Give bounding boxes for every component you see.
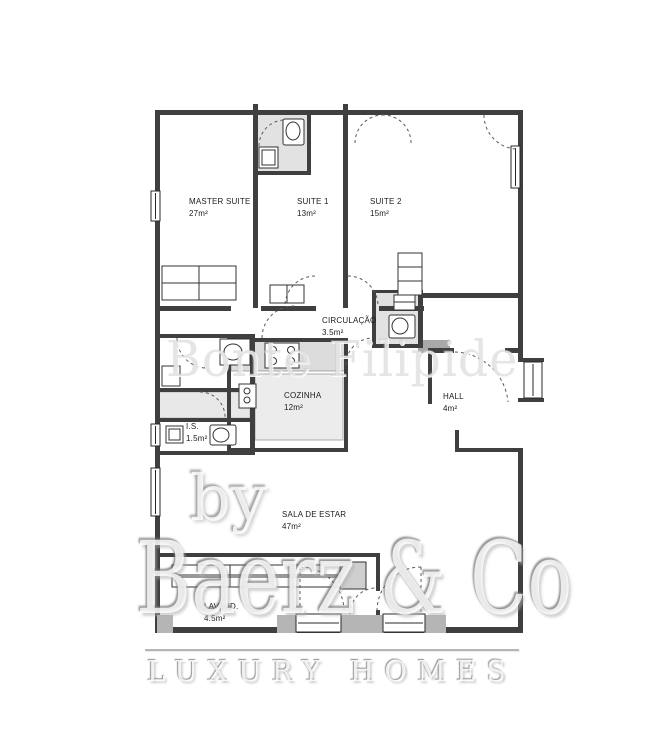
bed-icon [162,266,236,300]
room-area: 27m² [189,208,251,220]
window-icon [511,146,520,188]
room-area: 4m² [443,403,464,415]
room-name: HALL [443,391,464,403]
entry-door-icon [524,362,542,398]
sink-icon [259,147,278,168]
room-area: 1.5m² [186,433,207,445]
floor-plan-page: MASTER SUITE 27m² SUITE 1 13m² SUITE 2 1… [0,0,662,740]
watermark-tagline: LUXURY HOMES [147,654,516,688]
sink-icon [394,295,415,310]
room-label-circulacao: CIRCULAÇÃO 3.5m² [322,315,376,339]
room-name: SUITE 1 [297,196,329,208]
cistern-icon [166,426,183,443]
window-icon [151,424,160,446]
room-area: 3.5m² [322,327,376,339]
door-swing-icon [383,115,411,143]
wardrobe-icon [398,253,422,295]
room-label-suite-1: SUITE 1 13m² [297,196,329,220]
room-name: MASTER SUITE [189,196,251,208]
desk-icon [270,285,304,303]
room-label-hall: HALL 4m² [443,391,464,415]
room-name: I.S. [186,421,207,433]
room-label-master-suite: MASTER SUITE 27m² [189,196,251,220]
door-swing-icon [355,115,383,143]
room-area: 12m² [284,402,321,414]
room-name: SUITE 2 [370,196,402,208]
room-name: CIRCULAÇÃO [322,315,376,327]
room-area: 15m² [370,208,402,220]
window-icon [151,191,160,221]
room-label-is: I.S. 1.5m² [186,421,207,445]
toilet-icon [210,425,236,445]
room-area: 13m² [297,208,329,220]
room-label-suite-2: SUITE 2 15m² [370,196,402,220]
room-name: COZINHA [284,390,321,402]
door-swing-icon [484,115,518,149]
room-label-cozinha: COZINHA 12m² [284,390,321,414]
window-icon [151,468,160,516]
watermark-brand-logo: Baerz & Co [136,520,573,637]
watermark-underline [145,649,519,651]
toilet-icon [283,119,304,145]
